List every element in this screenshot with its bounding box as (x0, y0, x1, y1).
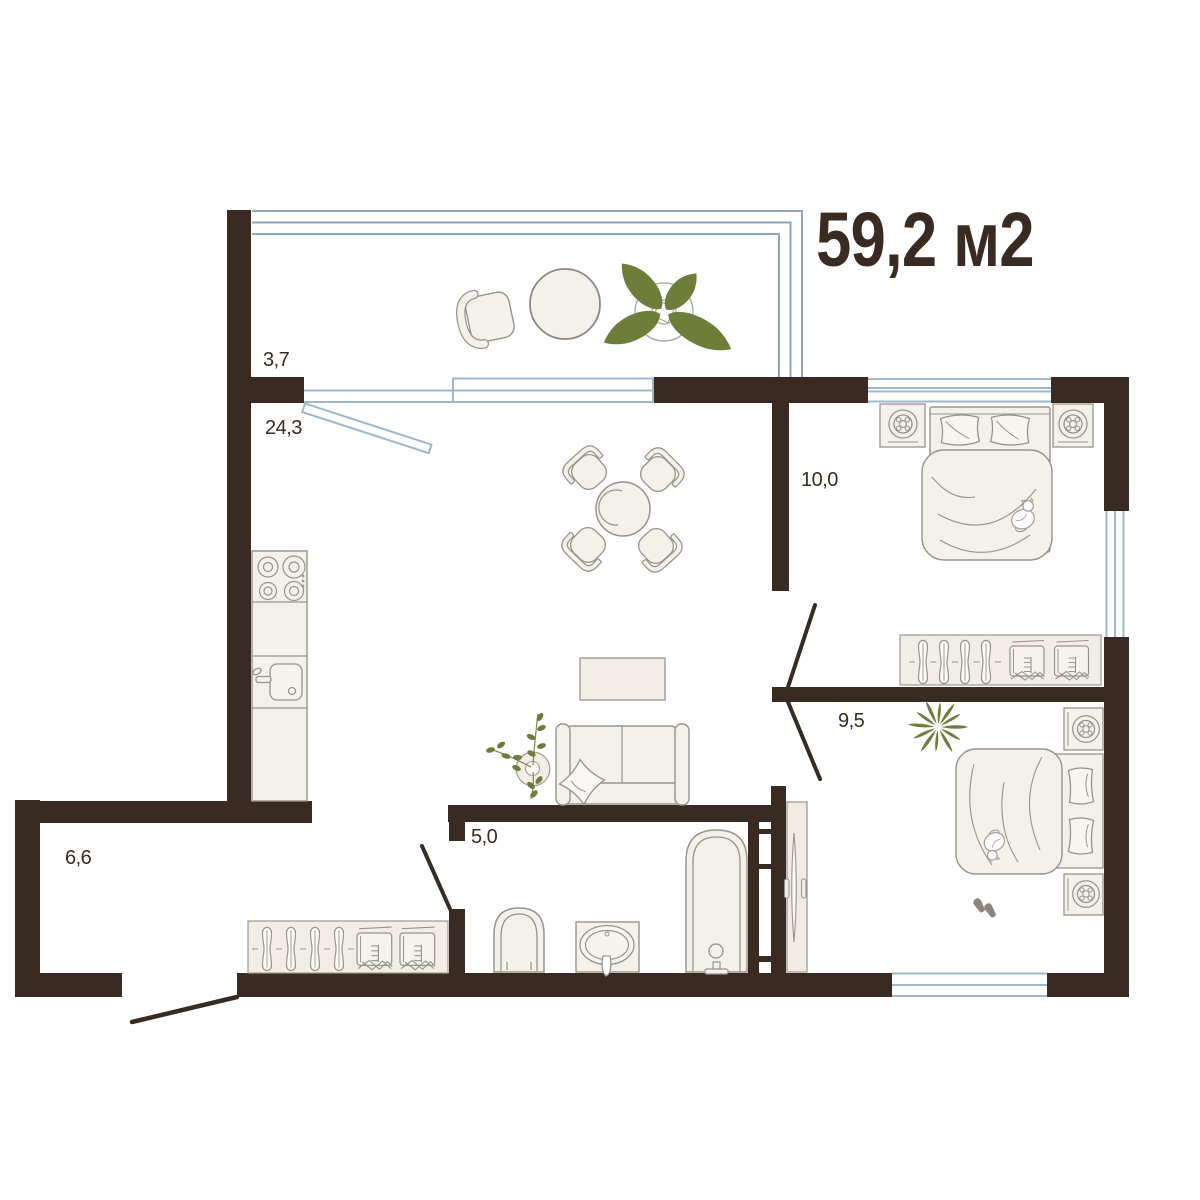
svg-text:9,5: 9,5 (838, 710, 865, 732)
svg-text:10,0: 10,0 (801, 469, 838, 491)
svg-text:3,7: 3,7 (263, 349, 290, 371)
svg-text:24,3: 24,3 (265, 417, 302, 439)
svg-text:5,0: 5,0 (471, 826, 498, 848)
svg-text:6,6: 6,6 (65, 847, 92, 869)
svg-text:59,2 м2: 59,2 м2 (816, 196, 1034, 282)
